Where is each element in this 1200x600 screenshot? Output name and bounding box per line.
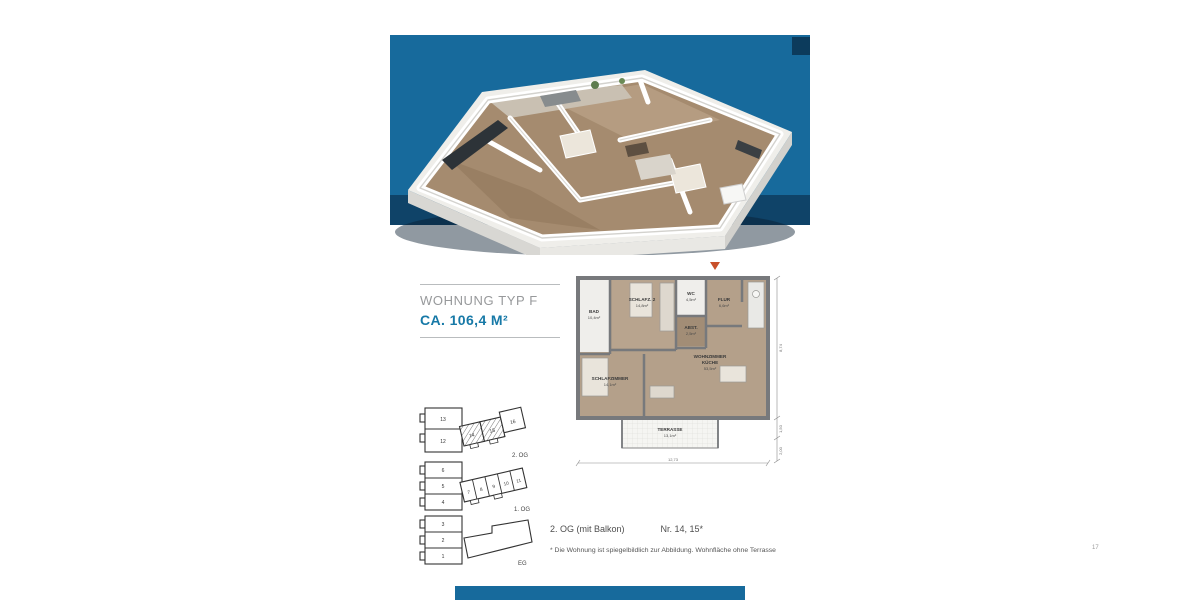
level-2og-bar: 14 15 16 [458, 407, 527, 450]
room-area: 2,5m² [686, 331, 697, 336]
level-diagram-1og: 6 5 4 7 8 9 10 11 1. OG [416, 460, 536, 514]
dim-right-height: 8,74 [778, 343, 783, 352]
room-label: TERRASSE [657, 427, 682, 432]
room-label: ABST. [684, 325, 697, 330]
unit-number: 1 [442, 554, 445, 560]
dim-right-bottom: 2,00 [778, 446, 783, 455]
level-diagrams: 13 12 14 15 16 2. OG [416, 404, 536, 568]
room-area: 13,1m² [664, 433, 677, 438]
unit-number: 5 [442, 484, 445, 490]
brochure-page: WOHNUNG TYP F CA. 106,4 M² [0, 0, 1200, 600]
room-area: 14,8m² [636, 303, 649, 308]
divider-bottom [420, 337, 560, 338]
level-diagram-eg: 3 2 1 EG [416, 514, 536, 568]
level-label: 2. OG [512, 453, 528, 459]
room-area: 10,4m² [588, 315, 601, 320]
room-area: 14,1m² [604, 382, 617, 387]
page-number: 17 [1092, 545, 1099, 551]
floorplan-2d: BAD 10,4m² SCHLAFZ. 2 14,8m² WC 4,5m² FL… [572, 258, 807, 473]
floor-caption: 2. OG (mit Balkon) [550, 524, 625, 534]
room-label: KÜCHE [702, 359, 718, 365]
room-label: WOHNZIMMER [694, 354, 727, 359]
level-label: EG [518, 561, 527, 567]
plant [591, 81, 599, 89]
divider-top [420, 284, 560, 285]
room-label: SCHLAFZ. 2 [629, 297, 656, 302]
dim-right-mid: 1,50 [778, 424, 783, 433]
room-label: BAD [589, 309, 600, 314]
apartment-3d-render [390, 40, 810, 255]
dim-bottom-width: 12,73 [668, 457, 679, 462]
unit-number: 2 [442, 538, 445, 544]
room-area: 6,6m² [719, 303, 730, 308]
title-block: WOHNUNG TYP F CA. 106,4 M² [420, 284, 560, 338]
level-1og-bar: 7 8 9 10 11 [460, 468, 528, 506]
room-label: FLUR [718, 297, 731, 302]
unit-number: 13 [440, 417, 446, 423]
page-title: WOHNUNG TYP F [420, 293, 560, 308]
level-eg-bar [464, 520, 532, 558]
level-label: 1. OG [514, 507, 530, 513]
room-label: WC [687, 291, 695, 296]
unit-number: 6 [442, 468, 445, 474]
room-area: 4,5m² [686, 297, 697, 302]
unit-number: 3 [442, 522, 445, 528]
plant [619, 78, 625, 84]
area-subtitle: CA. 106,4 M² [420, 312, 560, 328]
bathtub [720, 184, 746, 204]
footer-bar [455, 586, 745, 600]
entrance-marker-icon [710, 262, 720, 270]
unit-number: 12 [440, 439, 446, 445]
room-area: 53,5m² [704, 366, 717, 371]
unit-caption: Nr. 14, 15* [661, 524, 704, 534]
unit-number: 4 [442, 500, 445, 506]
caption-row: 2. OG (mit Balkon) Nr. 14, 15* [550, 524, 703, 534]
room-label: SCHLAFZIMMER [592, 376, 629, 381]
footnote: * Die Wohnung ist spiegelbildlich zur Ab… [550, 547, 776, 554]
level-diagram-2og: 13 12 14 15 16 2. OG [416, 404, 536, 460]
